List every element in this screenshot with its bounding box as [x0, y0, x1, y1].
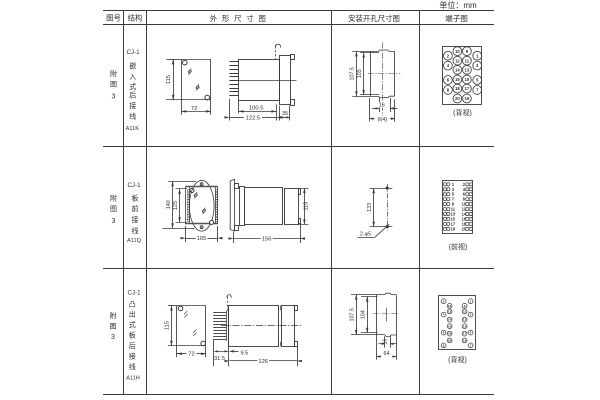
svg-text:15: 15	[465, 77, 470, 82]
svg-text:20: 20	[462, 226, 467, 231]
svg-text:附: 附	[110, 194, 117, 203]
svg-text:板: 板	[132, 194, 139, 203]
svg-text:板: 板	[129, 330, 136, 339]
svg-text:18: 18	[455, 86, 460, 91]
svg-text:64: 64	[384, 351, 390, 357]
svg-text:A11K: A11K	[126, 126, 140, 132]
svg-text:20: 20	[448, 339, 452, 343]
svg-text:20: 20	[455, 96, 460, 101]
svg-text:3: 3	[112, 218, 116, 225]
svg-text:凸: 凸	[129, 301, 136, 309]
svg-text:11: 11	[465, 58, 470, 63]
svg-text:线: 线	[132, 226, 139, 235]
svg-text:图: 图	[110, 205, 117, 213]
svg-text:接: 接	[132, 215, 139, 224]
svg-text:CJ-1: CJ-1	[126, 49, 140, 56]
svg-text:16: 16	[379, 103, 385, 109]
svg-text:后: 后	[129, 91, 136, 100]
svg-text:19: 19	[451, 226, 456, 231]
svg-text:122.5: 122.5	[246, 115, 261, 121]
svg-text:接: 接	[129, 352, 136, 361]
svg-text:12: 12	[455, 58, 460, 63]
svg-text:105: 105	[357, 69, 363, 78]
svg-text:结构: 结构	[128, 14, 143, 23]
svg-text:105: 105	[197, 236, 207, 242]
svg-text:安装开孔尺寸图: 安装开孔尺寸图	[348, 14, 400, 23]
svg-text:10: 10	[448, 304, 452, 308]
svg-text:35: 35	[282, 111, 288, 117]
svg-text:图号: 图号	[106, 14, 121, 23]
svg-text:104: 104	[361, 310, 367, 319]
svg-text:115: 115	[165, 321, 171, 330]
svg-text:13: 13	[465, 67, 470, 72]
svg-text:15: 15	[463, 324, 467, 328]
svg-text:出: 出	[129, 309, 136, 318]
svg-text:端子图: 端子图	[445, 13, 468, 23]
svg-text:18: 18	[448, 332, 452, 336]
svg-text:外形尺寸图: 外形尺寸图	[210, 14, 271, 23]
svg-text:115: 115	[304, 202, 310, 211]
svg-text:3: 3	[111, 334, 115, 341]
svg-text:16: 16	[382, 339, 388, 345]
svg-text:附: 附	[110, 311, 117, 320]
svg-text:CJ-1: CJ-1	[127, 290, 141, 297]
svg-text:(64): (64)	[378, 117, 388, 123]
svg-text:100.5: 100.5	[249, 105, 264, 111]
svg-text:115: 115	[166, 75, 172, 84]
svg-text:(背视): (背视)	[453, 108, 472, 117]
svg-text:嵌: 嵌	[129, 62, 136, 70]
svg-text:14: 14	[448, 318, 452, 322]
svg-text:140: 140	[166, 200, 172, 209]
svg-text:13: 13	[463, 318, 467, 322]
svg-text:后: 后	[129, 341, 136, 350]
svg-text:17: 17	[465, 86, 470, 91]
svg-text:19: 19	[463, 339, 467, 343]
svg-text:CJ-1: CJ-1	[127, 182, 141, 189]
svg-text:线: 线	[129, 112, 136, 121]
svg-text:11: 11	[463, 310, 467, 314]
svg-text:入: 入	[129, 73, 136, 81]
svg-text:72: 72	[188, 352, 194, 358]
svg-text:式: 式	[129, 82, 136, 91]
svg-text:12: 12	[448, 310, 452, 314]
svg-text:(前视): (前视)	[449, 242, 468, 251]
svg-text:9.5: 9.5	[241, 350, 249, 356]
svg-text:107.5: 107.5	[350, 67, 356, 81]
svg-text:16: 16	[455, 77, 460, 82]
svg-text:3: 3	[112, 94, 116, 101]
svg-text:133: 133	[367, 203, 373, 212]
svg-text:单位：mm: 单位：mm	[439, 0, 477, 10]
svg-text:2-φ5: 2-φ5	[360, 231, 371, 237]
svg-text:156: 156	[262, 237, 272, 243]
svg-text:17: 17	[463, 332, 467, 336]
svg-text:31.5: 31.5	[214, 356, 225, 362]
svg-text:14: 14	[455, 67, 460, 72]
svg-text:19: 19	[465, 96, 470, 101]
svg-text:72: 72	[191, 106, 197, 112]
svg-text:10: 10	[455, 49, 460, 54]
svg-text:图: 图	[110, 81, 117, 89]
svg-text:附: 附	[110, 69, 117, 78]
svg-text:接: 接	[129, 101, 136, 110]
svg-text:前: 前	[132, 204, 139, 213]
svg-text:126: 126	[258, 359, 268, 365]
svg-text:16: 16	[448, 324, 452, 328]
svg-text:A11Q: A11Q	[127, 238, 142, 244]
svg-text:式: 式	[129, 320, 136, 329]
svg-text:(背视): (背视)	[448, 355, 467, 364]
svg-text:A11H: A11H	[126, 376, 140, 382]
svg-text:125: 125	[173, 201, 179, 210]
svg-text:107.5: 107.5	[349, 308, 355, 322]
svg-text:线: 线	[129, 362, 136, 371]
svg-text:图: 图	[110, 322, 117, 330]
